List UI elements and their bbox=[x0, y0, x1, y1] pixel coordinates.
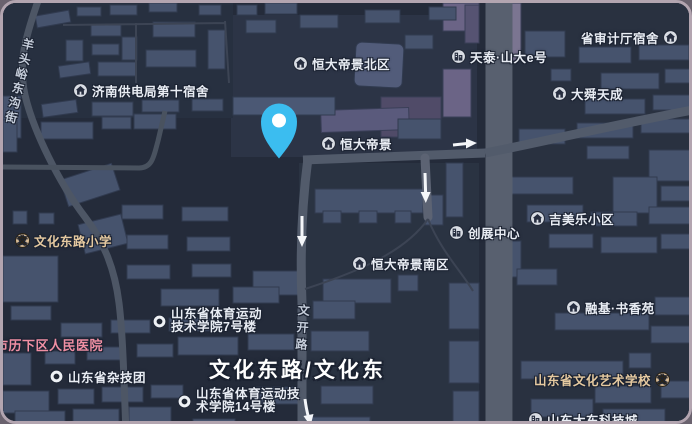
dot-icon bbox=[177, 394, 192, 409]
building-icon bbox=[449, 225, 464, 240]
poi-label: 融基·书香苑 bbox=[585, 298, 655, 317]
map-canvas[interactable]: 济南供电局第十宿舍 恒大帝景北区 恒大帝景 天泰·山大e号 省审计厅宿舍 大舜天… bbox=[0, 0, 692, 424]
poi-label: 恒大帝景北区 bbox=[312, 54, 390, 73]
svg-text:文: 文 bbox=[656, 374, 667, 386]
poi-rongji-shuxiangyuan[interactable]: 融基·书香苑 bbox=[566, 298, 655, 317]
poi-dashun-tiancheng[interactable]: 大舜天成 bbox=[552, 84, 623, 103]
poi-hengda-south[interactable]: 恒大帝景南区 bbox=[352, 254, 449, 273]
house-icon bbox=[663, 30, 678, 45]
street-label-wenhua-east-road: 文化东路/文化东 bbox=[209, 354, 386, 384]
poi-label: 山东省文化艺术学校 bbox=[534, 370, 651, 389]
poi-sport-institute-7[interactable]: 山东省体育运动 技术学院7号楼 bbox=[152, 308, 262, 334]
poi-tiantai-shanda[interactable]: 天泰·山大e号 bbox=[451, 47, 547, 66]
poi-audit-office-dorm[interactable]: 省审计厅宿舍 bbox=[581, 28, 678, 47]
street-label-wenkai-road: 文开路 bbox=[292, 303, 313, 355]
poi-label: 吉美乐小区 bbox=[549, 209, 614, 228]
poi-label: 山东大东科技城 bbox=[547, 410, 638, 424]
poi-label: 天泰·山大e号 bbox=[470, 47, 547, 66]
house-icon bbox=[566, 300, 581, 315]
house-icon bbox=[552, 86, 567, 101]
poi-label: 省审计厅宿舍 bbox=[581, 28, 659, 47]
dot-icon bbox=[49, 369, 64, 384]
poi-acrobatic-troupe[interactable]: 山东省杂技团 bbox=[49, 367, 146, 386]
school-icon: 文 bbox=[655, 372, 670, 387]
building-icon bbox=[528, 412, 543, 424]
poi-hengda-north[interactable]: 恒大帝景北区 bbox=[293, 54, 390, 73]
poi-lixia-hospital[interactable]: 市历下区人民医院 bbox=[0, 335, 103, 354]
house-icon bbox=[321, 136, 336, 151]
poi-label: 山东省杂技团 bbox=[68, 367, 146, 386]
house-icon bbox=[293, 56, 308, 71]
poi-jinan-power-dorm[interactable]: 济南供电局第十宿舍 bbox=[73, 81, 209, 100]
poi-chuangzhan-center[interactable]: 创展中心 bbox=[449, 223, 520, 242]
poi-label: 创展中心 bbox=[468, 223, 520, 242]
poi-label: 文化东路小学 bbox=[34, 231, 112, 250]
poi-label: 大舜天成 bbox=[571, 84, 623, 103]
house-icon bbox=[530, 211, 545, 226]
house-icon bbox=[73, 83, 88, 98]
poi-label: 恒大帝景 bbox=[340, 134, 392, 153]
house-icon bbox=[352, 256, 367, 271]
poi-dadong-tech-city[interactable]: 山东大东科技城 bbox=[528, 410, 638, 424]
poi-label: 济南供电局第十宿舍 bbox=[92, 81, 209, 100]
school-icon: 文 bbox=[15, 233, 30, 248]
poi-label: 市历下区人民医院 bbox=[0, 335, 103, 354]
svg-text:文: 文 bbox=[16, 235, 27, 247]
poi-wenhua-east-primary[interactable]: 文 文化东路小学 bbox=[15, 231, 112, 250]
poi-jimeile[interactable]: 吉美乐小区 bbox=[530, 209, 614, 228]
poi-sport-institute-14[interactable]: 山东省体育运动技 术学院14号楼 bbox=[177, 388, 300, 414]
building-icon bbox=[451, 49, 466, 64]
poi-label-line2: 技术学院7号楼 bbox=[171, 321, 262, 334]
poi-label-line2: 术学院14号楼 bbox=[196, 401, 300, 414]
dot-icon bbox=[152, 314, 167, 329]
poi-label: 恒大帝景南区 bbox=[371, 254, 449, 273]
poi-hengda[interactable]: 恒大帝景 bbox=[321, 134, 392, 153]
poi-art-school[interactable]: 山东省文化艺术学校 文 bbox=[534, 370, 670, 389]
